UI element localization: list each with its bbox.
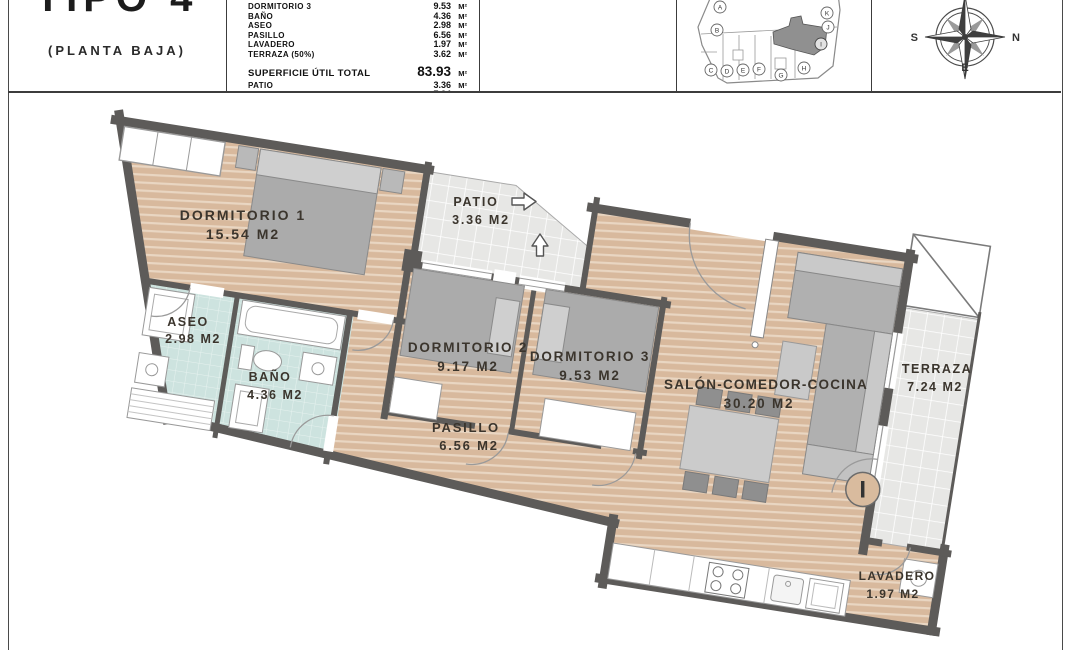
svg-text:1.97 M2: 1.97 M2 <box>866 587 919 601</box>
svg-text:PASILLO: PASILLO <box>432 420 500 435</box>
desk <box>389 377 442 420</box>
svg-text:2.98 M2: 2.98 M2 <box>165 332 221 346</box>
svg-text:SALÓN-COMEDOR-COCINA: SALÓN-COMEDOR-COCINA <box>664 377 868 392</box>
svg-text:15.54 M2: 15.54 M2 <box>206 226 280 242</box>
svg-text:TERRAZA: TERRAZA <box>902 362 972 376</box>
door-knob <box>752 341 759 348</box>
floorplan-sheet: TIPO 4 (PLANTA BAJA) DORMITORIO 3 9.53 M… <box>0 0 1070 650</box>
svg-text:DORMITORIO 3: DORMITORIO 3 <box>530 349 650 364</box>
svg-text:7.24 M2: 7.24 M2 <box>907 380 963 394</box>
svg-text:ASEO: ASEO <box>167 315 208 329</box>
svg-text:3.36 M2: 3.36 M2 <box>452 213 510 227</box>
dining-table <box>680 405 779 482</box>
svg-text:PATIO: PATIO <box>453 195 498 209</box>
svg-text:30.20 M2: 30.20 M2 <box>724 396 795 411</box>
svg-text:DORMITORIO 1: DORMITORIO 1 <box>180 207 306 223</box>
svg-text:9.53 M2: 9.53 M2 <box>559 368 620 383</box>
svg-text:9.17 M2: 9.17 M2 <box>437 359 498 374</box>
porch-area <box>902 234 990 317</box>
unit-marker-letter: I <box>859 476 866 503</box>
nightstand <box>380 168 405 193</box>
floor-plan: I DORMITORIO 1 15.54 M2 PATIO 3.36 M2 AS… <box>0 0 1070 650</box>
dishwasher-icon <box>806 578 844 613</box>
svg-text:4.36 M2: 4.36 M2 <box>247 388 303 402</box>
svg-text:LAVADERO: LAVADERO <box>859 569 936 583</box>
svg-text:DORMITORIO 2: DORMITORIO 2 <box>408 340 528 355</box>
kitchen-sink-icon <box>770 575 804 605</box>
svg-text:BAÑO: BAÑO <box>249 369 292 384</box>
svg-text:6.56 M2: 6.56 M2 <box>439 438 499 453</box>
nightstand <box>235 146 258 171</box>
washbasin-icon <box>299 352 337 385</box>
washbasin-icon <box>135 353 169 387</box>
